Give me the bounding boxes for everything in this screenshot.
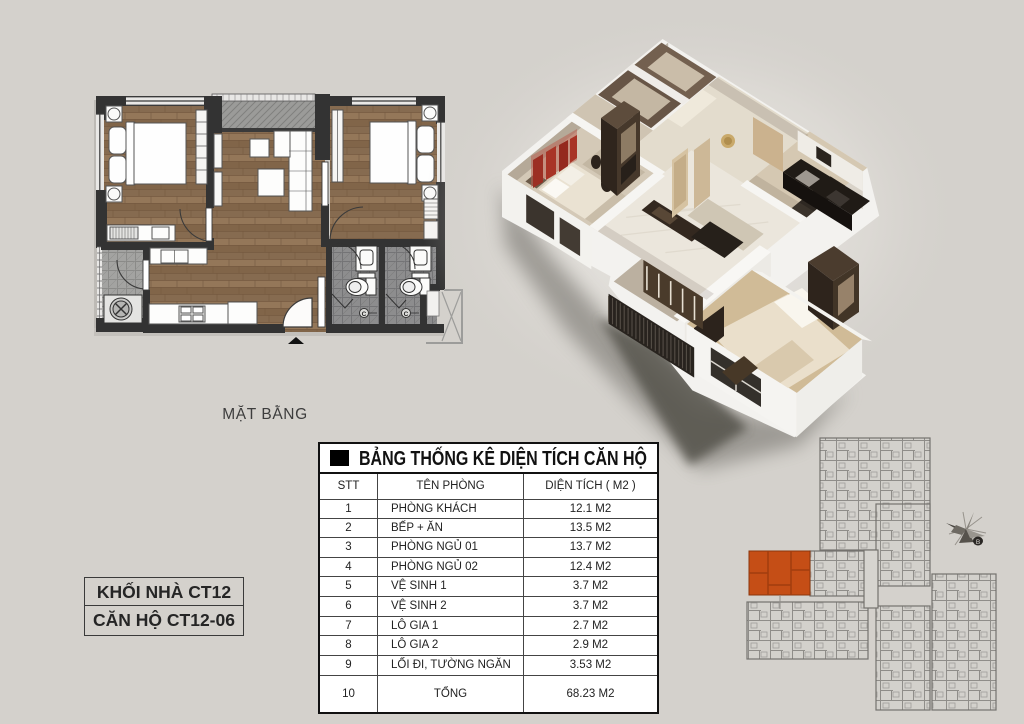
svg-text:B: B — [976, 539, 980, 546]
svg-text:BẢNG THỐNG KÊ DIỆN TÍCH CĂN HỘ: BẢNG THỐNG KÊ DIỆN TÍCH CĂN HỘ — [359, 446, 647, 470]
